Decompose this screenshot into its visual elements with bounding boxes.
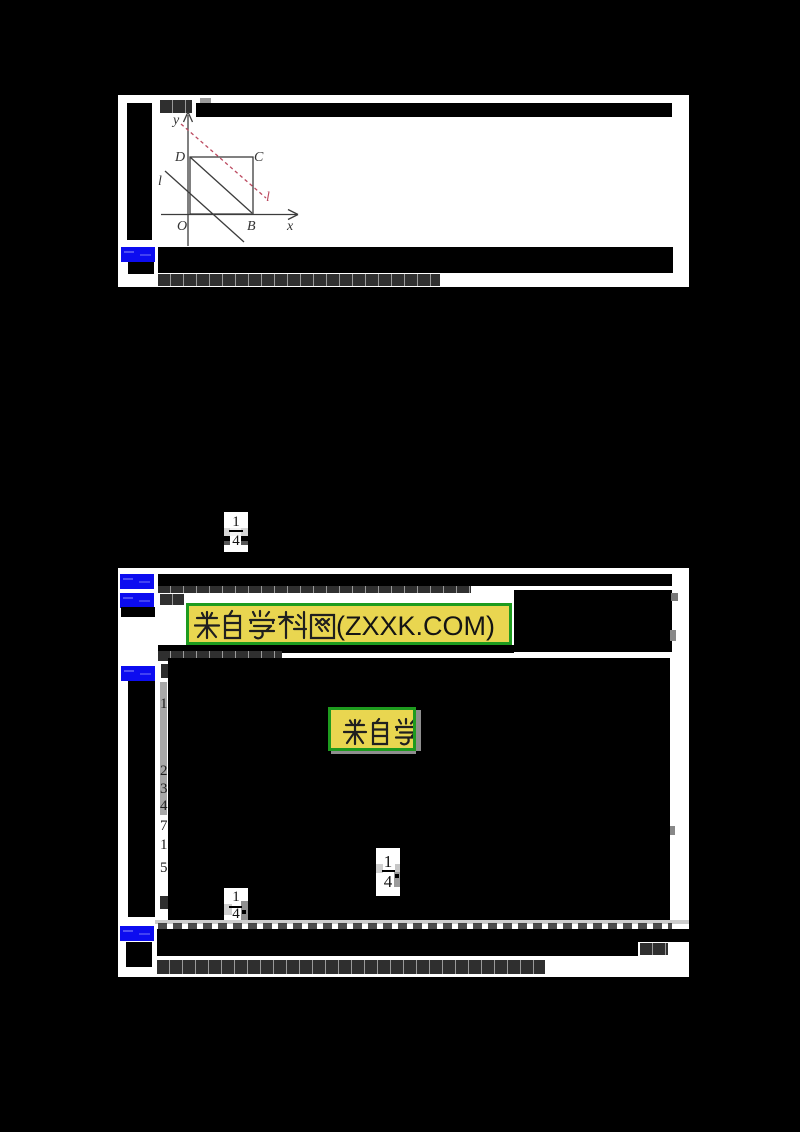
svg-text:x: x [286,219,294,234]
svg-text:l: l [158,174,162,189]
svg-text:B: B [247,219,256,234]
svg-text:(ZXXK.COM): (ZXXK.COM) [336,611,495,641]
svg-text:C: C [254,150,264,165]
svg-text:y: y [171,113,180,128]
svg-text:O: O [177,219,187,234]
svg-text:l: l [266,190,270,205]
svg-text:D: D [174,150,185,165]
